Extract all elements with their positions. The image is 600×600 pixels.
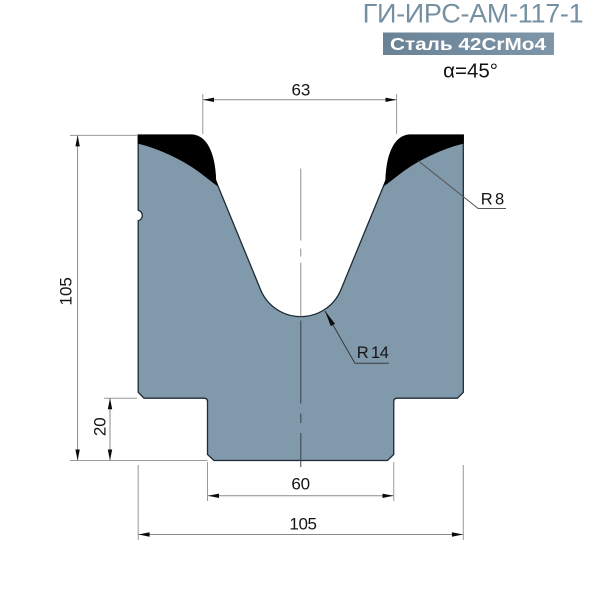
svg-text:60: 60 [291,475,310,494]
svg-text:20: 20 [91,417,110,436]
svg-text:R 8: R 8 [481,191,504,209]
svg-text:R 14: R 14 [357,344,389,362]
svg-text:63: 63 [291,80,310,99]
svg-text:105: 105 [56,277,75,305]
svg-text:105: 105 [289,514,316,533]
svg-text:ГИ-ИРС-АМ-117-1: ГИ-ИРС-АМ-117-1 [363,0,584,29]
svg-text:Сталь 42CrMo4: Сталь 42CrMo4 [390,34,546,54]
svg-text:α=45°: α=45° [443,60,498,83]
